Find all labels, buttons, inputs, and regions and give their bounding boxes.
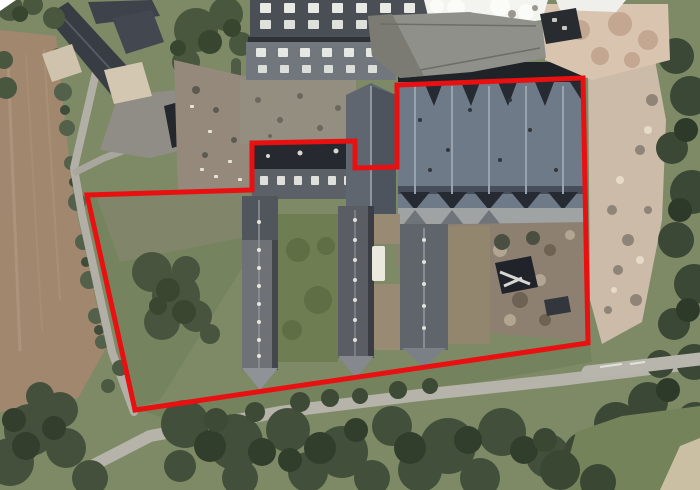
row2-skylights-b: [280, 65, 289, 73]
gravel-rubble-gray: [613, 265, 623, 275]
yard-speckles: [335, 105, 341, 111]
trees-bottom-dark: [394, 432, 426, 464]
shed-dark-dots: [298, 151, 303, 156]
hedgerow-bushes-dark: [60, 105, 70, 115]
debris-gray-specks: [532, 5, 538, 11]
rubble-scrub: [494, 234, 510, 250]
sawtooth-specks: [508, 98, 512, 102]
barn-south-dots: [422, 304, 426, 308]
shrub-near-track: [101, 379, 115, 393]
row1-skylights: [404, 3, 415, 13]
shed-gray-skylights: [294, 176, 302, 185]
row2-skylights-b: [258, 65, 267, 73]
trees-right-band: [658, 222, 694, 258]
row1-skylights-b: [332, 20, 343, 29]
yard-north-of-notch: [240, 80, 356, 144]
row2-skylights-b: [368, 65, 377, 73]
hut1-dots: [257, 284, 261, 288]
sawtooth-specks: [498, 158, 502, 162]
debris-white: [200, 168, 204, 171]
gravel-rubble-gray: [630, 294, 642, 306]
bare-ground-blotch: [608, 12, 632, 36]
row2-skylights: [256, 48, 266, 57]
rubble-dark: [539, 314, 551, 326]
row1-skylights: [380, 3, 391, 13]
row2-skylights-b: [302, 65, 311, 73]
hut1-dots: [257, 266, 261, 270]
debris-gray-specks: [508, 10, 516, 18]
hut1-shade: [272, 240, 278, 370]
hut1-dots: [257, 248, 261, 252]
row2-skylights: [300, 48, 310, 57]
debris-white: [214, 175, 218, 178]
trees-right-dark: [676, 298, 700, 322]
shed-gray-skylights: [311, 176, 319, 185]
equipment-dark: [540, 8, 582, 44]
hedgerow-bushes: [59, 120, 75, 136]
row1-skylights: [308, 3, 319, 13]
hut2-dots: [353, 298, 357, 302]
row1-skylights-b: [284, 20, 295, 29]
row1-skylights: [332, 3, 343, 13]
hut1-dots: [257, 338, 261, 342]
debris-dark: [202, 152, 208, 158]
shed-gray-skylights: [328, 176, 336, 185]
sawtooth-specks: [468, 108, 472, 112]
barn-south-dots: [422, 260, 426, 264]
rubble-light: [565, 230, 575, 240]
trees-bottom-left-dark: [42, 416, 66, 440]
equipment-bits: [562, 26, 567, 30]
rubble-dark: [544, 244, 556, 256]
row1-skylights-b: [308, 20, 319, 29]
row1-skylights: [356, 3, 367, 13]
row2-skylights: [344, 48, 354, 57]
trees-bottom-right: [540, 450, 580, 490]
trees-bottom-dark: [278, 448, 302, 472]
hut2-shade: [368, 206, 374, 358]
trees-bottom-left-dark: [12, 432, 40, 460]
trees-bottom-dark: [454, 426, 482, 454]
trees-on-road: [321, 389, 339, 407]
gravel-rubble-gray: [646, 94, 658, 106]
rubble-scrub: [526, 231, 540, 245]
yard-speckles: [255, 97, 261, 103]
courtyard-shade: [282, 320, 302, 340]
row2-skylights: [278, 48, 288, 57]
yard-speckles: [297, 93, 303, 99]
bare-ground-blotch: [591, 47, 609, 65]
courtyard: [278, 214, 338, 362]
bare-ground-blotch: [638, 30, 658, 50]
hut1-dots: [257, 220, 261, 224]
row1-skylights-b: [260, 20, 271, 29]
debris-white-blobs: [518, 4, 534, 20]
row2-skylights-b: [346, 65, 355, 73]
trees-right-dark: [674, 118, 698, 142]
sawtooth-specks: [528, 128, 532, 132]
gravel-rubble-gray: [604, 306, 612, 314]
courtyard-shade: [304, 286, 332, 314]
debris-dark: [213, 107, 219, 113]
trees-on-road: [389, 381, 407, 399]
trees-on-road: [290, 392, 310, 412]
hut2-dots: [353, 218, 357, 222]
gravel-rubble-gray: [607, 205, 617, 215]
barn-south-dots: [422, 282, 426, 286]
trees-on-road: [422, 378, 438, 394]
row1-skylights-b: [356, 20, 367, 29]
bush-cluster-field: [200, 324, 220, 344]
trees-right-dark: [656, 378, 680, 402]
shed-gray-skylights: [260, 176, 268, 185]
trees-topleft-dark: [198, 30, 222, 54]
dirt-strip-east: [448, 226, 490, 344]
trees-topleft-dark: [12, 6, 28, 22]
rubble-dark: [512, 292, 528, 308]
hut2-dots: [353, 238, 357, 242]
hut1-dots: [257, 320, 261, 324]
debris-dark: [231, 137, 237, 143]
hut1-dots: [257, 354, 261, 358]
debris-white: [238, 178, 242, 181]
trees-on-road: [352, 388, 368, 404]
row1-skylights: [284, 3, 295, 13]
trees-bottom-left-dark: [2, 408, 26, 432]
trees-right-dark: [668, 198, 692, 222]
row1-skylights: [260, 3, 271, 13]
equipment-bits: [552, 18, 557, 22]
yard-speckles: [317, 125, 323, 131]
trees-on-road: [245, 402, 265, 422]
aerial-photo-canvas[interactable]: [0, 0, 700, 490]
gravel-rubble-light: [611, 287, 617, 293]
gabled-building-shade: [371, 86, 396, 232]
shed-dark-dots: [334, 149, 339, 154]
debris-white: [190, 105, 194, 108]
bush-cluster-dark: [149, 297, 167, 315]
row2-skylights-b: [324, 65, 333, 73]
barn-south-dots: [422, 238, 426, 242]
trees-bottom-dark: [344, 418, 368, 442]
trees-bottom-dark: [248, 438, 276, 466]
shed-dark-dots: [266, 154, 270, 158]
row2-skylights: [322, 48, 332, 57]
rubble-light: [504, 314, 516, 326]
trees-on-road: [204, 408, 228, 432]
yard-speckles: [277, 117, 283, 123]
yard-speckles: [268, 134, 272, 138]
trees-bottom-band: [164, 450, 196, 482]
dirt-hut2-east2: [374, 284, 400, 350]
courtyard-shade: [286, 238, 310, 262]
dirt-hut2-east: [374, 214, 400, 244]
gravel-rubble-light: [636, 256, 644, 264]
trees-bottom-left: [26, 382, 54, 410]
hut2-dots: [353, 318, 357, 322]
hut1-dots: [257, 302, 261, 306]
trees-bottom-dark: [304, 432, 336, 464]
debris-white: [208, 130, 212, 133]
sawtooth-specks: [418, 118, 422, 122]
sawtooth-specks: [554, 168, 558, 172]
trees-topleft-dark: [170, 40, 186, 56]
debris-dark: [192, 86, 200, 94]
trees-bottom-dark: [194, 430, 226, 462]
gravel-rubble-gray: [635, 145, 645, 155]
trees-topleft-dark: [223, 19, 241, 37]
aerial-map-view[interactable]: [0, 0, 700, 490]
trees-topleft: [43, 7, 65, 29]
bush-cluster-field: [172, 256, 200, 284]
courtyard-shade: [317, 237, 335, 255]
debris-white: [228, 160, 232, 163]
barn-south-dots: [422, 326, 426, 330]
hut2-dots: [353, 338, 357, 342]
hut1-top: [242, 196, 278, 240]
gravel-rubble-light: [616, 176, 624, 184]
bush-cluster-dark: [172, 300, 196, 324]
gravel-rubble-light: [644, 126, 652, 134]
hut2-dots: [353, 278, 357, 282]
shed-gray-skylights: [277, 176, 285, 185]
hut2-dots: [353, 258, 357, 262]
sawtooth-specks: [446, 148, 450, 152]
hedgerow-bushes: [54, 83, 72, 101]
white-van: [372, 246, 385, 281]
trees-bottom-right: [533, 428, 557, 452]
sawtooth-specks: [428, 168, 432, 172]
gravel-rubble-gray: [644, 206, 652, 214]
bare-ground-blotch: [624, 52, 640, 68]
gravel-rubble-gray: [622, 234, 634, 246]
